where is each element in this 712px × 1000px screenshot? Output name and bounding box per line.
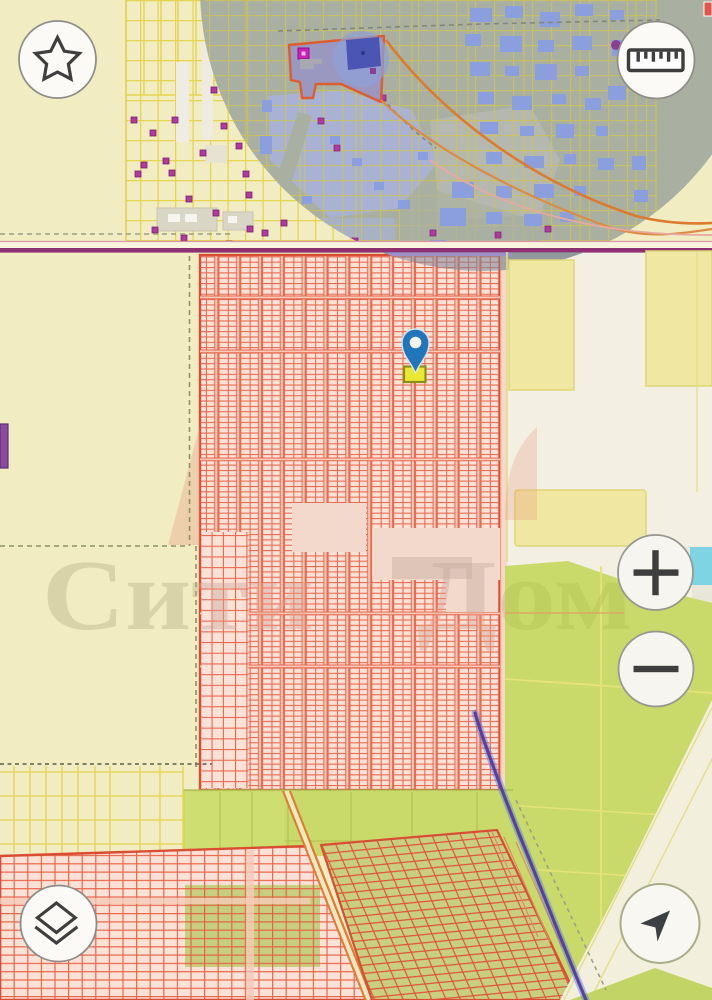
svg-text:Дом: Дом: [417, 539, 633, 651]
svg-text:Сити: Сити: [42, 539, 314, 651]
